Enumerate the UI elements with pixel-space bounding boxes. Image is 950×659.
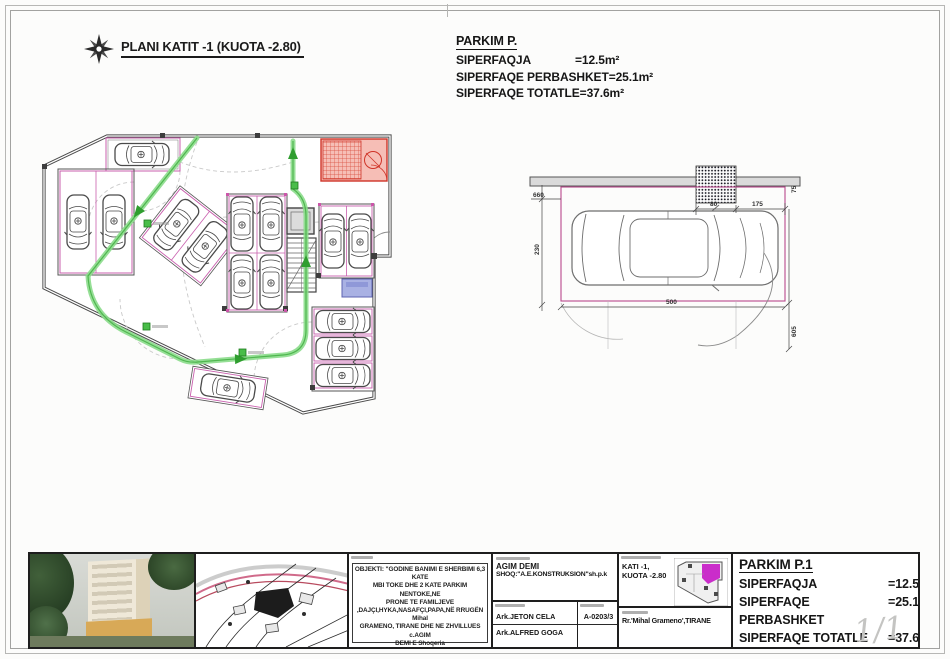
wall-band — [530, 177, 800, 186]
dim-230: 230 — [534, 244, 541, 255]
parking-bay — [319, 204, 374, 278]
summary-value: =12.5m² — [888, 575, 918, 593]
technical-room-blue — [342, 279, 372, 297]
architects-column: Ark.JETON CELA Ark.ALFRED GOGA — [493, 602, 577, 647]
building-photo — [30, 554, 194, 647]
summary-value: =25.1m² — [609, 69, 653, 86]
investor-block: AGIM DEMI SHOQ:"A.E.KONSTRUKSION"sh.p.k — [493, 554, 617, 602]
illegible-label — [495, 604, 525, 607]
architects-block: Ark.JETON CELA Ark.ALFRED GOGA A-0203/3 — [493, 602, 617, 647]
site-map-drawing — [196, 554, 347, 647]
level-block: KATI -1, KUOTA -2.80 — [619, 556, 731, 608]
objekti-line: MBI TOKE DHE 2 KATE PARKIM NENTOKE,NE — [354, 582, 486, 598]
objekti-line: DEMI E Shoqeria "A.E.KONSTRUKSION"sh.p.k… — [354, 640, 486, 647]
elevator-shaft — [287, 208, 314, 234]
ramp-room-red — [321, 139, 387, 181]
dim-605: 605 — [791, 326, 798, 337]
page-title: PLANI KATIT -1 (KUOTA -2.80) — [121, 39, 304, 58]
investor-architects-cell: AGIM DEMI SHOQ:"A.E.KONSTRUKSION"sh.p.k … — [491, 554, 617, 647]
level-text: KATI -1, KUOTA -2.80 — [622, 562, 666, 580]
photo-windows — [92, 563, 132, 621]
page-number: 1/1 — [853, 610, 906, 650]
level-address-cell: KATI -1, KUOTA -2.80 Rr.'Mihal Grameno',… — [617, 554, 731, 647]
photo-ground — [30, 636, 194, 647]
summary-heading: PARKIM P.1 — [739, 557, 813, 573]
illegible-label — [351, 556, 373, 559]
summary-label: SIPERFAQE PERBASHKET — [456, 69, 609, 86]
objekti-line: OBJEKTI: "GODINE BANIMI E SHERBIMI 6,3 K… — [354, 566, 486, 582]
parking-summary-top: PARKIM P. SIPERFAQJA=12.5m² SIPERFAQE PE… — [456, 34, 653, 102]
summary-value: =37.6m² — [580, 85, 624, 102]
level-line: KUOTA -2.80 — [622, 571, 666, 580]
summary-label: SIPERFAQJA — [456, 52, 575, 69]
license-number: A-0203/3 — [578, 609, 617, 625]
address-block: Rr.'Mihal Grameno',TIRANE — [619, 608, 731, 626]
car-top-view — [572, 205, 778, 291]
level-line: KATI -1, — [622, 562, 666, 571]
drawing-sheet: { "sheet": { "page_number": "1/1" }, "pl… — [0, 0, 950, 659]
door-swing — [561, 303, 623, 339]
fold-mark — [447, 4, 448, 17]
dim-660: 660 — [533, 192, 544, 199]
floor-plan-drawing — [30, 122, 440, 467]
summary-heading: PARKIM P. — [456, 34, 517, 50]
illegible-label — [496, 557, 530, 560]
project-description-cell: OBJEKTI: "GODINE BANIMI E SHERBIMI 6,3 K… — [347, 554, 491, 647]
title-block: OBJEKTI: "GODINE BANIMI E SHERBIMI 6,3 K… — [28, 552, 920, 649]
project-description: OBJEKTI: "GODINE BANIMI E SHERBIMI 6,3 K… — [352, 563, 488, 643]
dim-175: 175 — [752, 201, 763, 208]
staircase — [287, 238, 316, 292]
objekti-line: ,DAJÇI,HYKA,NASAFÇI,PAPA,NË RRUGËN Mihal — [354, 607, 486, 623]
key-plan-thumbnail — [674, 558, 728, 606]
investor-name: AGIM DEMI — [496, 562, 614, 571]
illegible-label — [621, 556, 661, 559]
investor-company: SHOQ:"A.E.KONSTRUKSION"sh.p.k — [496, 571, 614, 578]
illegible-label — [622, 611, 648, 614]
dim-80: 80 — [710, 201, 718, 208]
objekti-line: PRONE TE FAMILJEVE — [354, 599, 486, 607]
architect-name: Ark.ALFRED GOGA — [493, 625, 577, 641]
compass-rose-icon — [84, 34, 114, 64]
parking-bay-center — [227, 194, 287, 312]
parking-detail-drawing: 660 230 80 175 75 500 605 — [528, 153, 813, 358]
address: Rr.'Mihal Grameno',TIRANE — [622, 616, 728, 625]
dim-500: 500 — [666, 299, 677, 306]
summary-label: SIPERFAQE TOTATLE — [456, 85, 580, 102]
parking-bay-stack — [312, 307, 374, 391]
site-map — [194, 554, 347, 647]
architect-name: Ark.JETON CELA — [493, 609, 577, 625]
illegible-label — [580, 604, 604, 607]
summary-label: SIPERFAQJA — [739, 575, 888, 593]
objekti-line: GRAMENO, TIRANE DHE NE ZHVILLUES c.AGIM — [354, 623, 486, 639]
summary-value: =12.5m² — [575, 52, 619, 69]
hatched-column — [696, 166, 736, 203]
dim-75: 75 — [791, 185, 798, 193]
license-column: A-0203/3 — [577, 602, 617, 647]
